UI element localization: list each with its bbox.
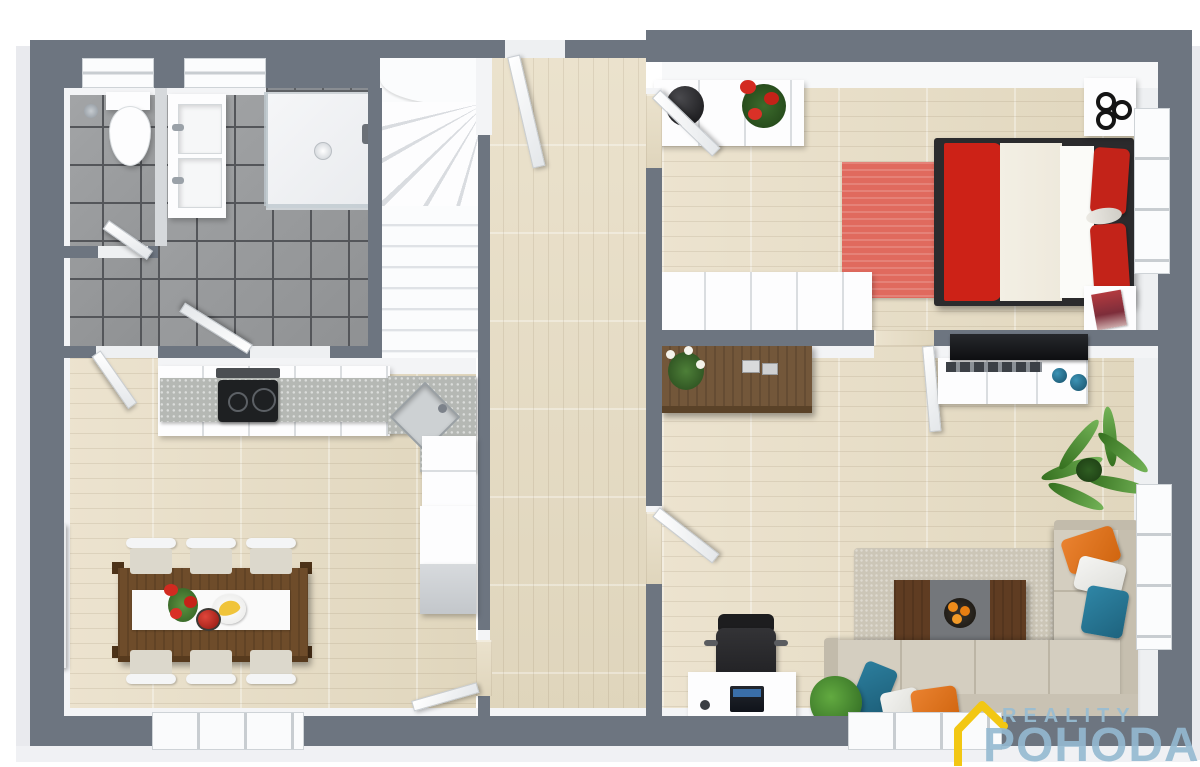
wc-south-wall-a — [64, 246, 98, 258]
bed-blanket-red — [944, 143, 1002, 301]
chair-back — [186, 674, 236, 684]
orange-2 — [960, 606, 970, 616]
table-flowers-red-1 — [164, 584, 178, 596]
stair-east-wall — [478, 135, 490, 630]
bed-comforter — [1000, 143, 1062, 301]
tv-media-row — [946, 362, 1042, 372]
tv-screen — [950, 334, 1088, 360]
chair-seat — [190, 650, 232, 676]
burner-right — [252, 388, 276, 412]
range-hood — [216, 368, 280, 378]
desk-lamp — [700, 700, 710, 710]
kitchen-doorway — [476, 640, 492, 696]
top-wall-mid-b — [565, 40, 646, 58]
pillow-teal-corner — [1080, 585, 1130, 640]
palm-center — [1076, 458, 1102, 482]
table-flowers-red-3 — [170, 608, 182, 619]
chair-seat — [250, 650, 292, 676]
chair-seat — [130, 650, 172, 676]
red-plant-bloom-1 — [740, 80, 756, 94]
apple-bowl — [196, 608, 221, 631]
floor-plan-render: REALITY POHODA — [0, 0, 1200, 767]
sink-faucet — [438, 404, 447, 413]
magazine — [1091, 290, 1127, 331]
kitchen-window — [152, 712, 304, 750]
bed-living-doorway — [874, 330, 934, 346]
stair-straight-steps — [380, 206, 488, 358]
wc-bath-divider-wall — [155, 88, 167, 246]
stair-winder-steps — [380, 102, 488, 206]
blue-bowl-1 — [1052, 368, 1067, 383]
red-plant-bloom-3 — [748, 108, 762, 120]
outer-rim-left — [16, 46, 30, 760]
chair-back — [246, 674, 296, 684]
orchid-bloom-3 — [696, 360, 705, 369]
table-flowers-red-2 — [184, 596, 197, 608]
tall-appliance-front — [420, 564, 476, 614]
chair-back — [246, 538, 296, 548]
faucet-top — [172, 124, 184, 131]
kitchen-door-jamb — [478, 630, 490, 640]
top-wall-mid-a — [380, 40, 505, 58]
hall-east-wall-mid — [646, 168, 662, 506]
vanity-sink-top — [178, 104, 222, 154]
office-chair-arm-right — [774, 640, 788, 646]
top-wall-right — [646, 30, 1158, 62]
orange-1 — [948, 602, 958, 612]
office-chair-arm-left — [704, 640, 718, 646]
photo-frame-1 — [742, 360, 760, 373]
tall-cabinet — [420, 506, 476, 564]
hall-east-wall-bottom — [646, 584, 662, 716]
chair-seat — [190, 548, 232, 574]
orchid-bloom-2 — [684, 346, 693, 355]
wc-window — [82, 58, 154, 88]
bedroom-window — [1134, 108, 1170, 274]
hallway-floor — [488, 56, 646, 716]
bathroom-doorway — [250, 346, 330, 358]
bed-pillow-red-bottom — [1090, 223, 1131, 293]
stair-landing — [380, 58, 488, 104]
kitchen-lower-cabinet — [422, 436, 476, 506]
photo-frame-2 — [762, 363, 778, 375]
red-plant-bloom-2 — [764, 92, 779, 105]
shower-drain — [314, 142, 332, 160]
laptop-screen — [733, 689, 761, 697]
orchid-bloom-1 — [666, 350, 675, 359]
chair-back — [126, 538, 176, 548]
bed-pillow-red-top — [1090, 147, 1131, 215]
shower-glass — [264, 92, 268, 206]
vestibule-doorway — [96, 346, 158, 358]
bedroom-dresser — [660, 272, 872, 330]
blue-bowl-2 — [1070, 374, 1087, 391]
waste-bin — [84, 104, 98, 118]
burner-left — [228, 392, 248, 412]
vanity-sink-bottom — [178, 158, 222, 208]
bathroom-window — [184, 58, 266, 88]
shower-glass-bottom — [266, 204, 378, 208]
logo-text-pohoda: POHODA — [983, 718, 1200, 767]
orange-3 — [952, 614, 962, 624]
stair-east-wall-top — [476, 58, 492, 135]
chair-seat — [130, 548, 172, 574]
stair-east-wall-bottom — [478, 696, 490, 716]
left-wall — [30, 40, 64, 746]
bed-living-wall-a — [662, 330, 874, 346]
living-window-right — [1136, 484, 1172, 650]
chair-back — [186, 538, 236, 548]
candle-holder-3 — [1096, 110, 1116, 130]
stair-west-wall — [368, 88, 382, 358]
chair-back — [126, 674, 176, 684]
staircase — [380, 58, 488, 358]
faucet-bottom — [172, 177, 184, 184]
chair-seat — [250, 548, 292, 574]
